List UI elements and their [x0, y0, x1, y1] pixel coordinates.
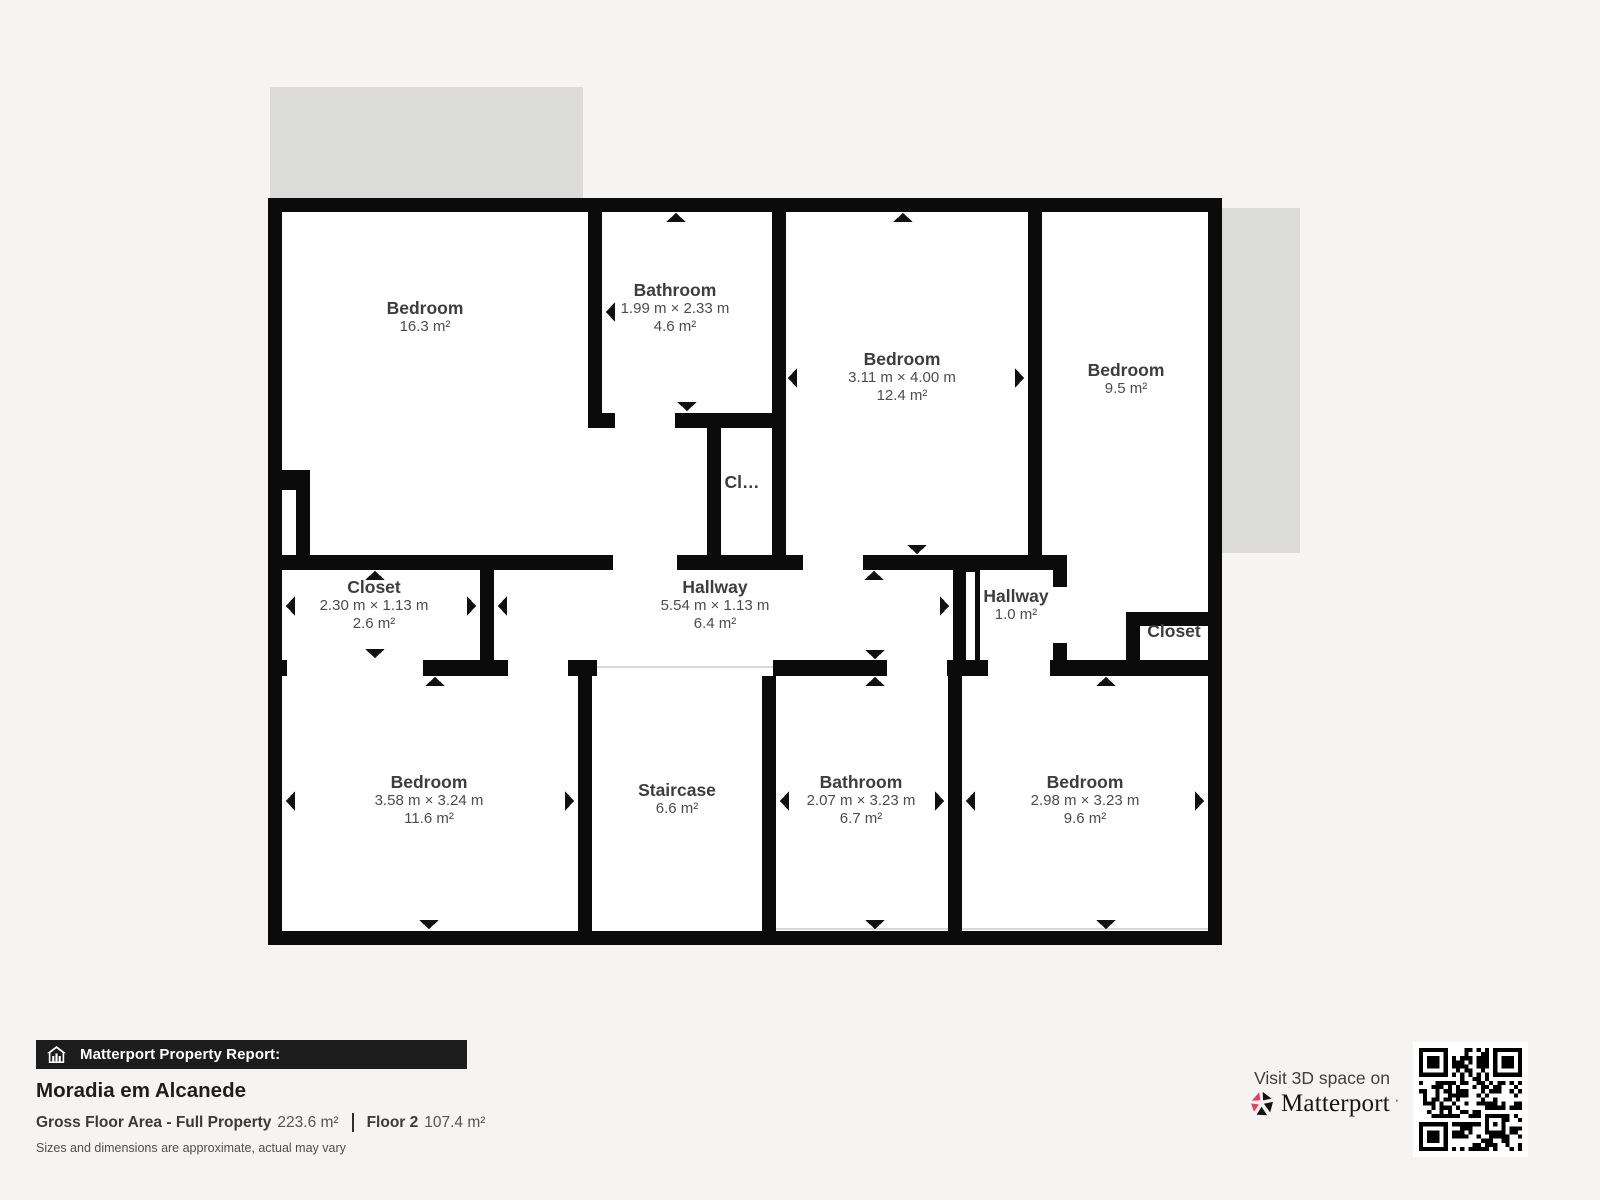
room-name: Hallway — [661, 577, 770, 597]
room-area: 9.6 m² — [1031, 810, 1140, 828]
room-name: Closet — [320, 577, 429, 597]
report-bar-title: Matterport Property Report: — [80, 1046, 280, 1063]
room-area: 4.6 m² — [621, 318, 730, 336]
matterport-floorplan-page: Bedroom 16.3 m² Bathroom 1.99 m × 2.33 m… — [0, 0, 1600, 1200]
floor-label: Floor 2 — [367, 1114, 419, 1132]
room-name: Bedroom — [375, 772, 484, 792]
floor-area-stats: Gross Floor Area - Full Property 223.6 m… — [36, 1113, 485, 1132]
room-dimensions: 2.07 m × 3.23 m — [807, 792, 916, 810]
matterport-pinwheel-icon — [1248, 1090, 1276, 1118]
room-area: 12.4 m² — [848, 387, 956, 405]
room-dimensions: 2.30 m × 1.13 m — [320, 597, 429, 615]
room-dimensions: 5.54 m × 1.13 m — [661, 597, 770, 615]
report-title-bar: Matterport Property Report: — [36, 1040, 467, 1069]
gross-floor-area-label: Gross Floor Area - Full Property — [36, 1114, 271, 1132]
room-name: Bedroom — [1088, 360, 1165, 380]
room-dimensions: 2.98 m × 3.23 m — [1031, 792, 1140, 810]
room-name: Cl… — [725, 472, 760, 492]
room-label-bathroom-4-6: Bathroom 1.99 m × 2.33 m 4.6 m² — [621, 280, 730, 336]
disclaimer-text: Sizes and dimensions are approximate, ac… — [36, 1141, 346, 1155]
room-label-bedroom-16-3: Bedroom 16.3 m² — [387, 298, 464, 336]
room-name: Bedroom — [387, 298, 464, 318]
house-chart-icon — [47, 1046, 66, 1063]
room-area: 9.5 m² — [1088, 380, 1165, 398]
matterport-wordmark: Matterport — [1281, 1090, 1390, 1118]
room-name: Hallway — [983, 586, 1048, 606]
room-dimensions: 3.11 m × 4.00 m — [848, 369, 956, 387]
property-name: Moradia em Alcanede — [36, 1079, 246, 1103]
floor-value: 107.4 m² — [424, 1114, 485, 1132]
room-label-closet-2-6: Closet 2.30 m × 1.13 m 2.6 m² — [320, 577, 429, 633]
room-name: Bathroom — [807, 772, 916, 792]
room-name: Closet — [1147, 621, 1200, 641]
room-name: Bedroom — [1031, 772, 1140, 792]
room-dimensions: 1.99 m × 2.33 m — [621, 300, 730, 318]
floorplan-drawing — [0, 0, 1600, 1200]
stats-divider — [352, 1113, 354, 1132]
matterport-logo: Matterport ' — [1248, 1090, 1398, 1118]
room-label-hallway-6-4: Hallway 5.54 m × 1.13 m 6.4 m² — [661, 577, 770, 633]
room-area: 2.6 m² — [320, 615, 429, 633]
gross-floor-area-value: 223.6 m² — [277, 1114, 338, 1132]
room-area: 6.4 m² — [661, 615, 770, 633]
room-dimensions: 3.58 m × 3.24 m — [375, 792, 484, 810]
room-area: 1.0 m² — [983, 606, 1048, 624]
qr-code — [1413, 1042, 1528, 1157]
visit-3d-space-text: Visit 3D space on — [1246, 1068, 1398, 1089]
room-name: Staircase — [638, 780, 716, 800]
matterport-trademark: ' — [1396, 1098, 1398, 1110]
room-name: Bedroom — [848, 349, 956, 369]
room-label-hallway-1-0: Hallway 1.0 m² — [983, 586, 1048, 624]
room-area: 11.6 m² — [375, 810, 484, 828]
room-name: Bathroom — [621, 280, 730, 300]
room-label-bedroom-11-6: Bedroom 3.58 m × 3.24 m 11.6 m² — [375, 772, 484, 828]
room-label-bedroom-9-5: Bedroom 9.5 m² — [1088, 360, 1165, 398]
room-label-staircase: Staircase 6.6 m² — [638, 780, 716, 818]
room-area: 16.3 m² — [387, 318, 464, 336]
room-label-bathroom-6-7: Bathroom 2.07 m × 3.23 m 6.7 m² — [807, 772, 916, 828]
room-label-closet-right: Closet — [1147, 621, 1200, 641]
room-area: 6.7 m² — [807, 810, 916, 828]
room-label-bedroom-12-4: Bedroom 3.11 m × 4.00 m 12.4 m² — [848, 349, 956, 405]
room-label-closet-small: Cl… — [725, 472, 760, 492]
room-label-bedroom-9-6: Bedroom 2.98 m × 3.23 m 9.6 m² — [1031, 772, 1140, 828]
room-area: 6.6 m² — [638, 800, 716, 818]
